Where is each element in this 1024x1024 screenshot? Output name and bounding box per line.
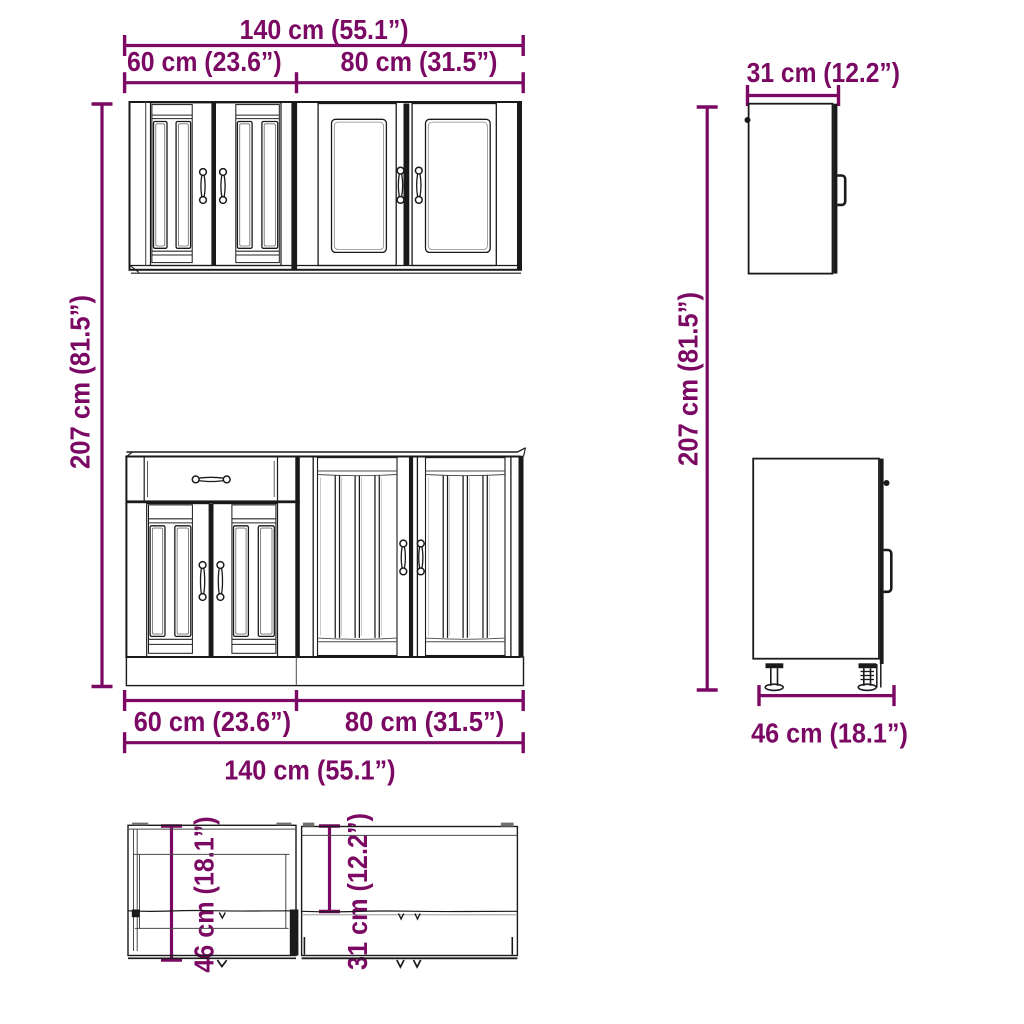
- svg-text:80 cm (31.5”): 80 cm (31.5”): [341, 46, 498, 77]
- svg-text:207 cm (81.5”): 207 cm (81.5”): [673, 292, 704, 466]
- svg-text:31 cm (12.2”): 31 cm (12.2”): [342, 813, 373, 970]
- svg-text:80 cm (31.5”): 80 cm (31.5”): [345, 706, 505, 737]
- svg-text:60 cm (23.6”): 60 cm (23.6”): [127, 46, 282, 77]
- svg-text:60 cm (23.6”): 60 cm (23.6”): [134, 706, 291, 737]
- svg-text:46 cm (18.1”): 46 cm (18.1”): [751, 718, 908, 749]
- svg-text:207 cm (81.5”): 207 cm (81.5”): [65, 295, 96, 469]
- svg-text:31 cm (12.2”): 31 cm (12.2”): [747, 57, 900, 88]
- svg-text:140 cm (55.1”): 140 cm (55.1”): [224, 755, 395, 786]
- svg-text:46 cm (18.1”): 46 cm (18.1”): [189, 816, 220, 972]
- svg-text:140 cm (55.1”): 140 cm (55.1”): [240, 14, 409, 45]
